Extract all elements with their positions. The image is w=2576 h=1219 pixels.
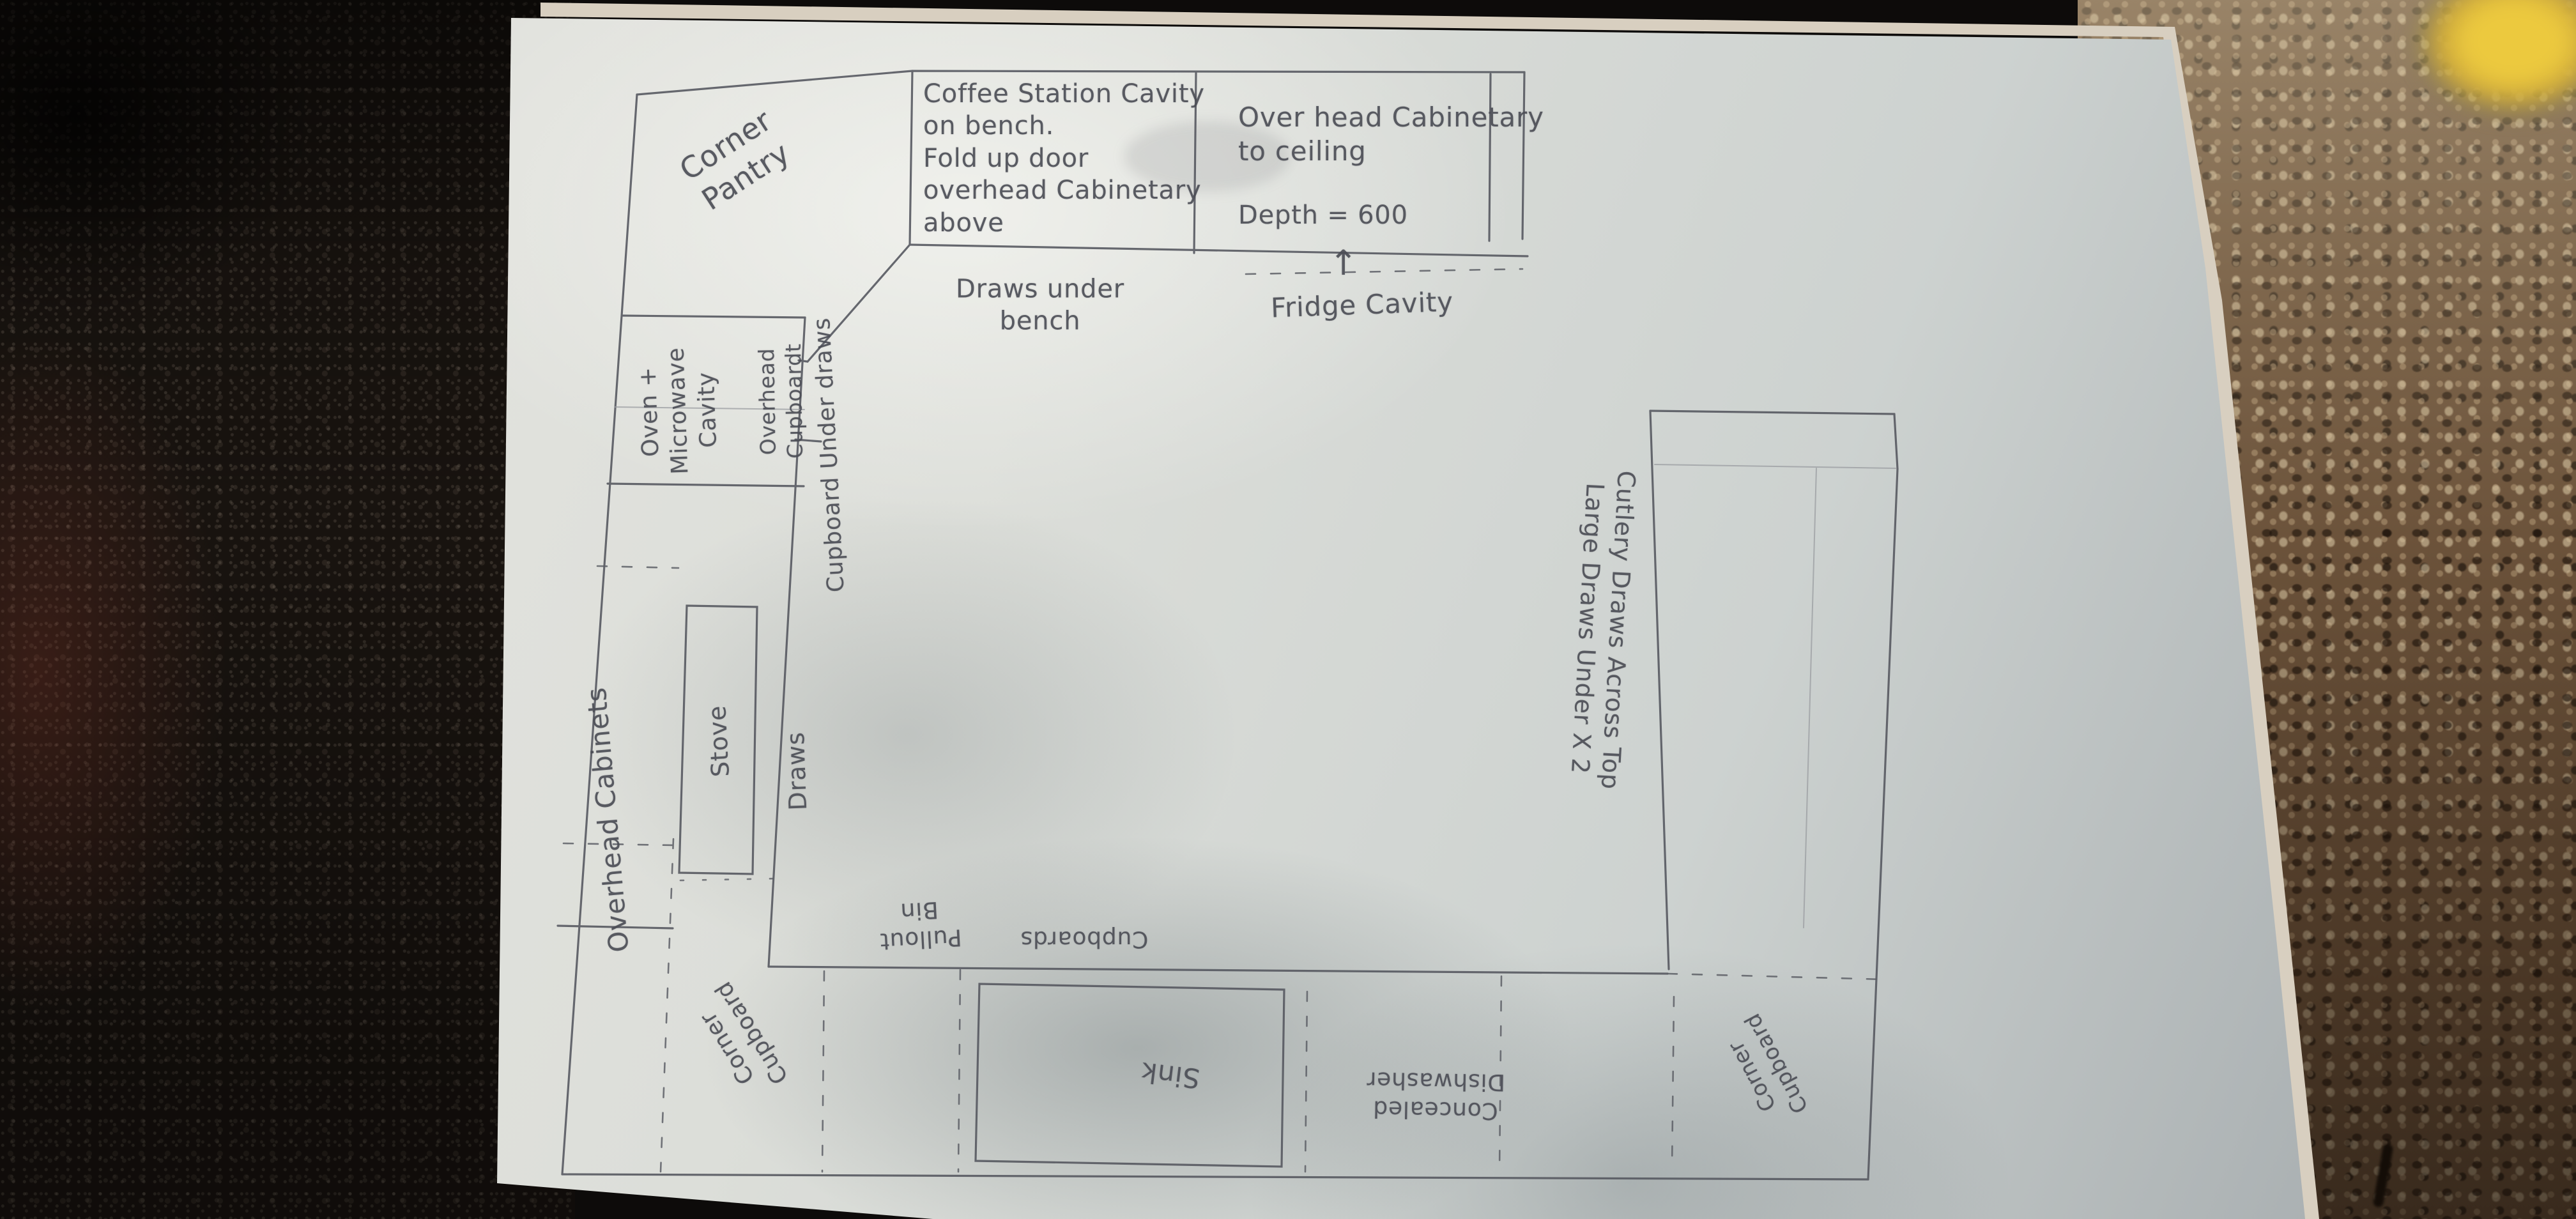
pullout-bin-label: Pullout Bin (877, 893, 962, 955)
overhead-cupboard-label: Overhead Cupboardt (753, 343, 808, 459)
draws-under-bench-label: Draws under bench (956, 273, 1124, 338)
granite-countertop-left (0, 0, 575, 1219)
sink-label: Sink (1139, 1054, 1202, 1095)
photo-of-kitchen-plan: Corner Pantry Coffee Station Cavity on b… (0, 0, 2576, 1219)
draws-label: Draws (781, 732, 814, 811)
cupboards-label: Cupboards (1020, 924, 1149, 953)
depth-label: Depth = 600 (1238, 199, 1408, 231)
oven-microwave-label: Oven + Microwave Cavity (633, 346, 724, 476)
overhead-cabinetry-label: Over head Cabinetary to ceiling (1238, 101, 1544, 169)
stove-label: Stove (702, 705, 737, 778)
fridge-cavity-label: Fridge Cavity (1270, 286, 1454, 326)
coffee-station-label: Coffee Station Cavity on bench. Fold up … (923, 78, 1205, 239)
dishwasher-label: Concealed Dishwasher (1366, 1065, 1506, 1125)
up-arrow-icon: ↑ (1329, 241, 1358, 285)
